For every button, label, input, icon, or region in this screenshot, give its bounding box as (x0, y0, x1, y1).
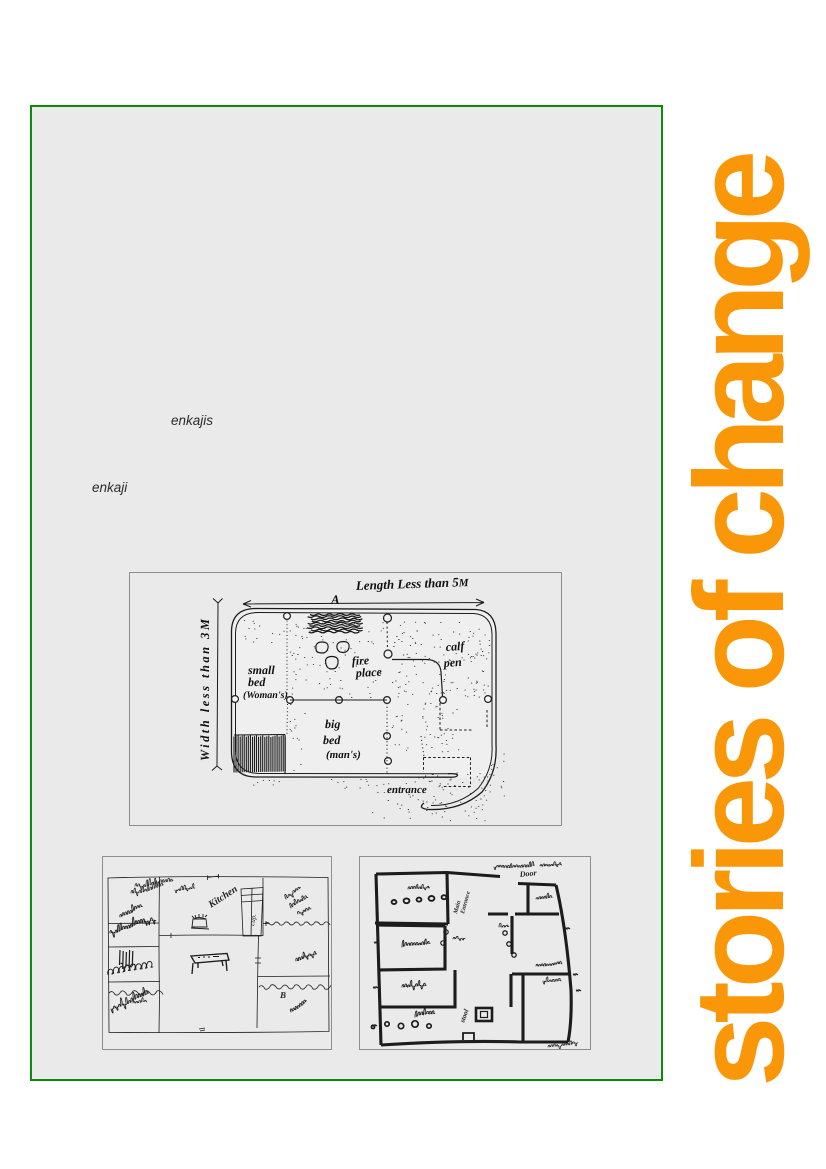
svg-text:Kitchen: Kitchen (206, 884, 240, 912)
svg-text:A: A (330, 592, 340, 607)
svg-text:w: w (373, 985, 377, 991)
svg-text:bed: bed (323, 733, 341, 747)
svg-text:w: w (565, 926, 569, 932)
svg-text:Door: Door (518, 868, 538, 879)
svg-text:entrance: entrance (387, 784, 427, 796)
svg-text:cup.: cup. (248, 913, 258, 926)
svg-text:stool: stool (458, 1008, 471, 1025)
svg-text:Width less than 3M: Width less than 3M (198, 618, 212, 761)
svg-text:w: w (374, 940, 378, 946)
svg-text:w: w (576, 988, 580, 994)
svg-text:w: w (372, 1023, 376, 1029)
svg-text:(man's): (man's) (326, 749, 361, 761)
svg-text:pen: pen (442, 655, 462, 670)
svg-text:(Woman's): (Woman's) (243, 690, 288, 701)
svg-text:bed: bed (248, 675, 266, 689)
svg-text:Length Less than 5M: Length Less than 5M (355, 574, 470, 593)
svg-text:place: place (354, 665, 382, 680)
svg-text:calf: calf (445, 639, 466, 654)
svg-text:stories of change: stories of change (668, 153, 810, 1087)
svg-text:w: w (573, 972, 577, 978)
svg-text:B: B (279, 990, 286, 1000)
svg-text:big: big (325, 717, 340, 731)
